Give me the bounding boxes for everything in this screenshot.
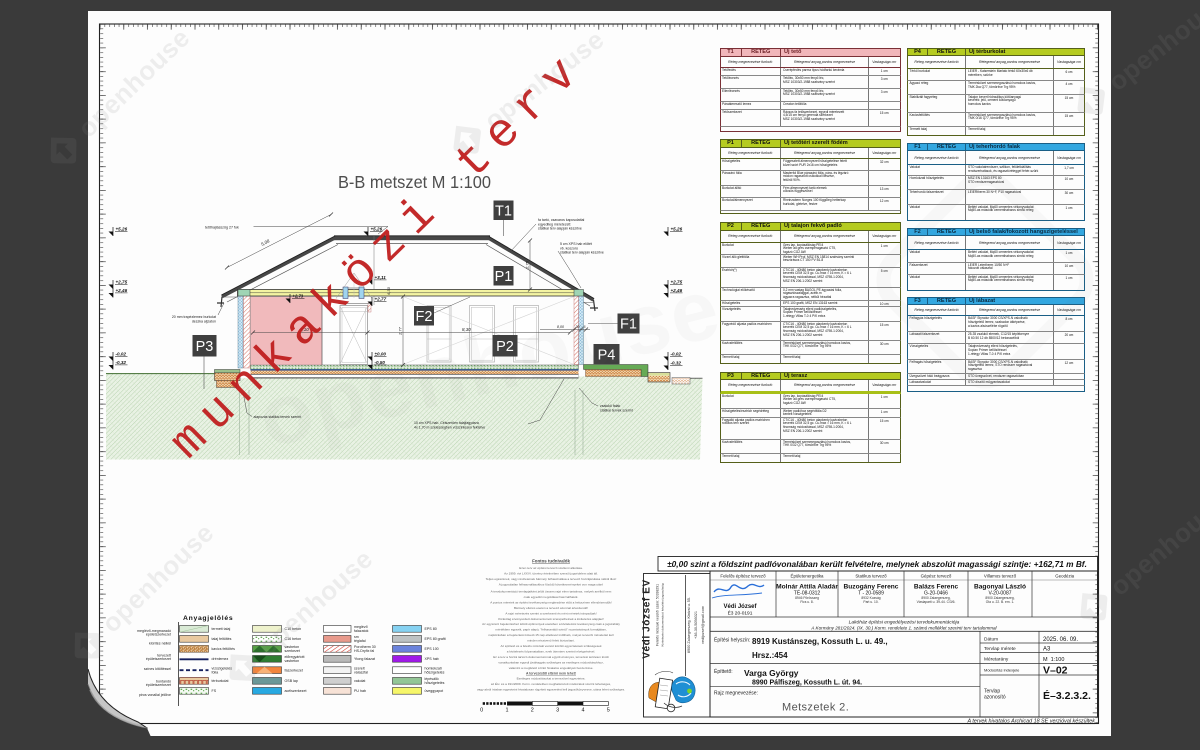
svg-text:Statikus tervező: Statikus tervező	[855, 574, 887, 579]
svg-text:8900 Zalaegerszeg, Kinizsi u.: 8900 Zalaegerszeg, Kinizsi u. 55.	[687, 597, 691, 653]
svg-text:V–02: V–02	[1043, 665, 1068, 677]
svg-text:vedijozsef@gmail.com: vedijozsef@gmail.com	[701, 606, 705, 644]
svg-text:Felelős műszaki vezetői szám:: Felelős műszaki vezetői szám: 50338291	[656, 584, 660, 646]
svg-text:A3: A3	[1043, 647, 1051, 653]
svg-text:Tervlap mérete: Tervlap mérete	[984, 646, 1016, 652]
svg-text:Villamos tervező: Villamos tervező	[984, 574, 1017, 579]
svg-text:Buzogány Ferenc: Buzogány Ferenc	[844, 584, 899, 591]
svg-text:A tervek hivatalos Archicad 18: A tervek hivatalos Archicad 18 SE verzió…	[966, 719, 1095, 725]
svg-text:Épületenergetika: Épületenergetika	[791, 574, 825, 579]
svg-text:Varga György: Varga György	[744, 668, 799, 678]
svg-text:Dátum: Dátum	[984, 637, 998, 643]
svg-text:A Kormány 281/2024. (IX. 30.): A Kormány 281/2024. (IX. 30.) Korm. rend…	[810, 626, 997, 631]
svg-text:Védi József: Védi József	[723, 604, 757, 610]
svg-text:Molnár Attila Aladár: Molnár Attila Aladár	[776, 584, 838, 591]
svg-text:É–3.2.3.2.: É–3.2.3.2.	[1043, 689, 1091, 702]
svg-text:Rajz megnevezése:: Rajz megnevezése:	[714, 691, 758, 697]
svg-text:Bagonyai László: Bagonyai László	[974, 584, 1026, 591]
svg-text:Hrsz.:454: Hrsz.:454	[752, 651, 788, 660]
svg-text:2025. 06. 09.: 2025. 06. 09.	[1043, 637, 1078, 643]
svg-text:Balázs Ferenc: Balázs Ferenc	[914, 584, 959, 591]
svg-text:Vizslaparti u. 39-44. C/3/6.: Vizslaparti u. 39-44. C/3/6.	[917, 600, 956, 604]
svg-text:Építtető:: Építtető:	[714, 668, 733, 675]
svg-text:+36-30-5056021: +36-30-5056021	[694, 611, 698, 639]
svg-text:Méretarány: Méretarány	[984, 657, 1009, 663]
svg-text:8919 Kustánszeg, Kossuth L. u.: 8919 Kustánszeg, Kossuth L. u. 49.,	[752, 637, 888, 646]
svg-text:Metszetek 2.: Metszetek 2.	[782, 702, 849, 714]
svg-text:Part u. 10.: Part u. 10.	[863, 600, 878, 604]
svg-text:Gépész tervező: Gépész tervező	[921, 574, 952, 579]
svg-text:É3 20-0191: É3 20-0191	[728, 610, 753, 617]
svg-text:Módosítás indexjele: Módosítás indexjele	[984, 668, 1020, 673]
svg-text:Fics u. 8.: Fics u. 8.	[800, 600, 813, 604]
svg-text:Építési helyszín:: Építési helyszín:	[714, 637, 750, 644]
svg-text:±0,00 szint a földszint padlóv: ±0,00 szint a földszint padlóvonalában k…	[667, 559, 1087, 569]
svg-text:azonosító: azonosító	[984, 695, 1006, 701]
svg-text:Kivitelezési dokumentáció kész: Kivitelezési dokumentáció készítési jogo…	[661, 583, 665, 646]
svg-text:Ola u. 22. B. em. 1.: Ola u. 22. B. em. 1.	[986, 600, 1014, 604]
svg-text:Felelős építész tervező: Felelős építész tervező	[720, 574, 766, 579]
svg-text:M 1:100: M 1:100	[1043, 657, 1064, 663]
svg-text:Védi József EV: Védi József EV	[642, 579, 653, 659]
svg-text:8990 Pálfiszeg, Kossuth L. út.: 8990 Pálfiszeg, Kossuth L. út. 94.	[752, 680, 862, 687]
svg-text:Geodézia: Geodézia	[1055, 574, 1074, 579]
